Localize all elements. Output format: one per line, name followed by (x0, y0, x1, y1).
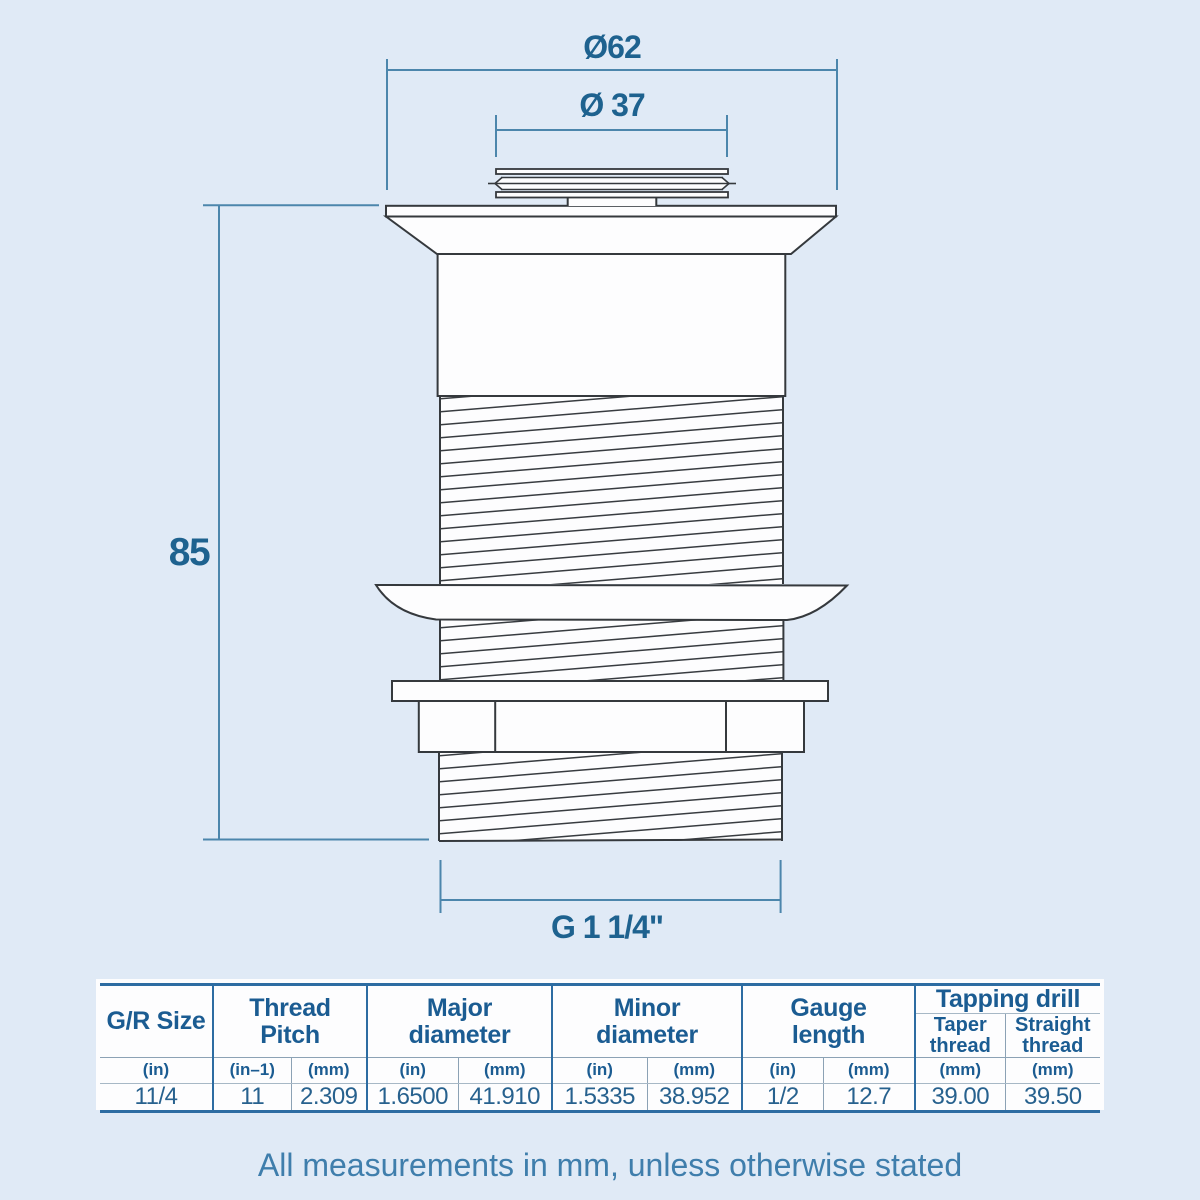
svg-text:Ø62: Ø62 (583, 29, 641, 65)
svg-text:Ø 37: Ø 37 (579, 87, 645, 123)
svg-text:G 1 1/4": G 1 1/4" (551, 909, 663, 945)
svg-text:85: 85 (169, 531, 210, 574)
